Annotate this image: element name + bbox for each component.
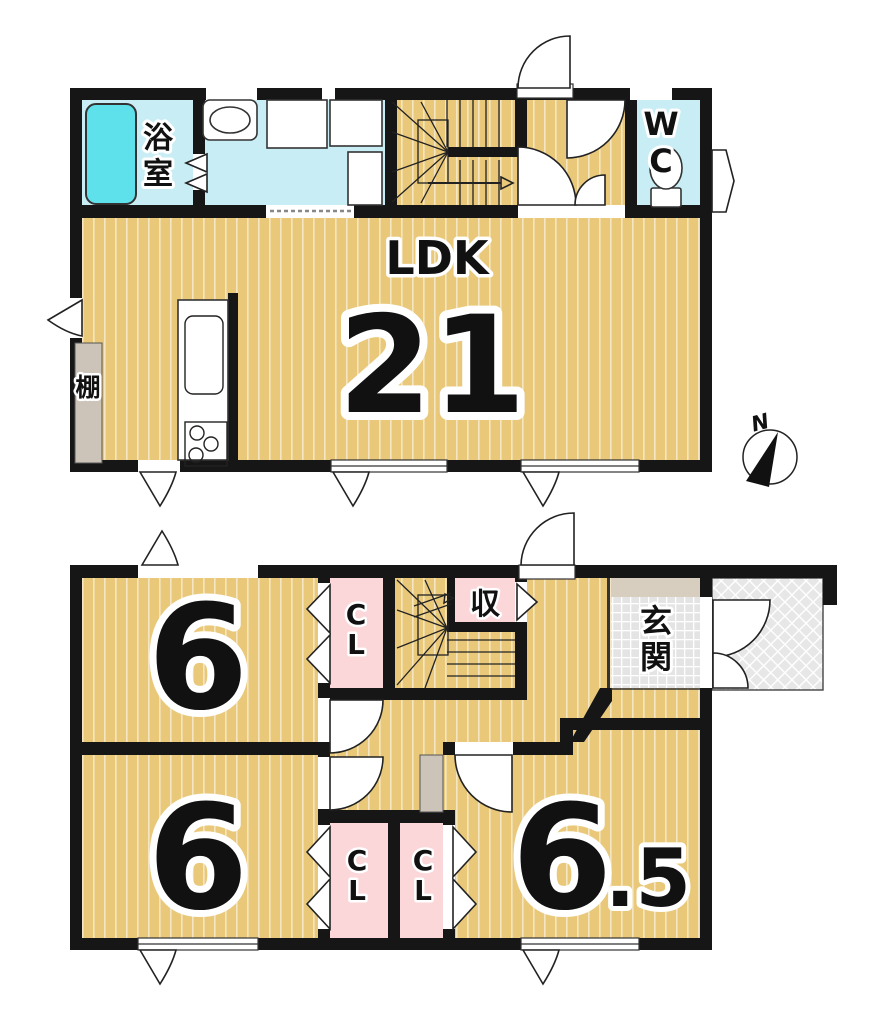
cabinet — [348, 152, 382, 205]
wc-label-w: W — [643, 105, 678, 143]
bathtub — [86, 104, 136, 204]
washer-space — [267, 100, 327, 148]
closet-top-l: L — [347, 628, 365, 661]
shelf-label: 棚 — [75, 373, 100, 402]
doorway — [318, 698, 330, 742]
casement-window-icon — [523, 950, 559, 984]
closet-b1-l: L — [348, 874, 366, 907]
room6-bottom-size: 6 — [148, 774, 249, 943]
window — [206, 88, 257, 100]
window — [630, 88, 672, 100]
wc-exterior-window — [712, 150, 734, 212]
compass: N — [743, 409, 797, 487]
entrance-label1: 玄 — [640, 602, 672, 640]
lower-floor: 収 玄 関 C L C L C L 6 6 6 .5 — [70, 513, 837, 984]
compass-north-label: N — [749, 409, 773, 437]
wc-label-c: C — [649, 142, 672, 180]
exterior-door — [518, 36, 570, 88]
doorway — [318, 757, 330, 809]
upper-floor: 浴 室 W C LDK 21 棚 — [48, 36, 734, 506]
ldk-size-label: 21 — [338, 287, 526, 444]
ldk-label: LDK — [385, 231, 490, 285]
casement-window-icon — [333, 472, 369, 506]
toilet-tank — [651, 188, 681, 207]
closet-b1-c: C — [347, 844, 368, 877]
room6-top-size: 6 — [148, 574, 249, 743]
washstand-basin — [210, 107, 250, 133]
rear-exterior-door — [521, 513, 574, 565]
floorplan-page: 浴 室 W C LDK 21 棚 — [0, 0, 876, 1024]
window — [138, 460, 180, 472]
ldk-doorway — [518, 205, 625, 218]
window — [322, 88, 335, 100]
bathroom-label2: 室 — [143, 157, 173, 192]
partition-block — [420, 755, 443, 812]
floorplan-drawing: 浴 室 W C LDK 21 棚 — [0, 0, 876, 1024]
casement-window-icon — [48, 300, 82, 336]
casement-window-icon — [142, 531, 178, 565]
entrance-doorway — [700, 597, 712, 688]
room65-size-frac: .5 — [605, 832, 691, 925]
rear-door-threshold — [519, 565, 575, 579]
casement-window-icon — [140, 950, 176, 984]
washer-space — [330, 100, 382, 146]
bathroom-label: 浴 — [143, 121, 174, 156]
entrance-label2: 関 — [640, 638, 672, 676]
doorway — [455, 742, 513, 755]
room65-size-whole: 6 — [512, 774, 613, 943]
casement-window-icon — [140, 472, 176, 506]
casement-window-icon — [523, 472, 559, 506]
closet-b2-c: C — [413, 844, 434, 877]
shelf — [75, 343, 102, 463]
closet-top-c: C — [346, 598, 367, 631]
storage-label: 収 — [470, 587, 501, 622]
entrance-step — [611, 578, 702, 597]
closet-b2-l: L — [414, 874, 432, 907]
